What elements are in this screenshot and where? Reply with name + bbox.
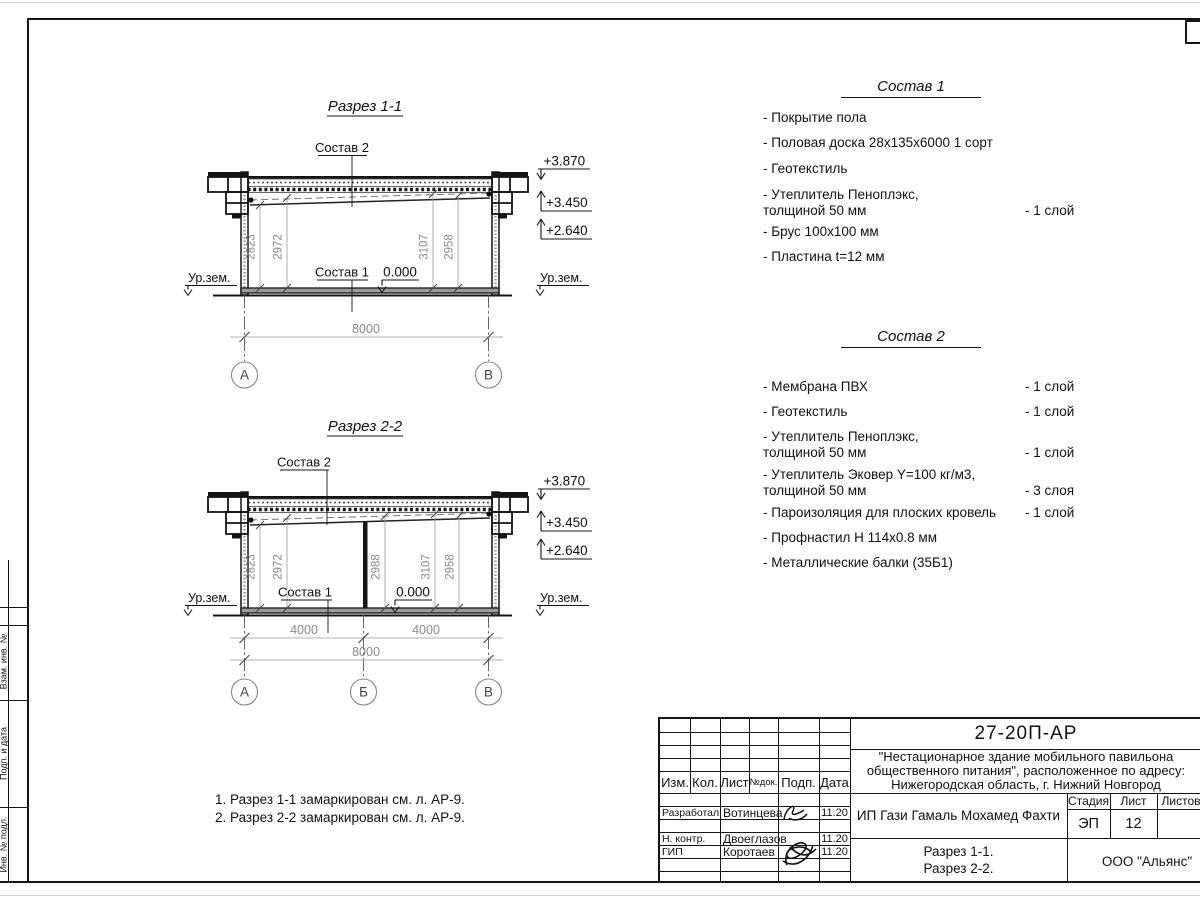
axis-m: Б — [359, 685, 368, 700]
floor-and-ground — [213, 608, 512, 616]
note-2: 2. Разрез 2-2 замаркирован см. л. АР-9. — [215, 809, 465, 827]
list-item: - Профнастил Н 114х0.8 мм — [763, 530, 1185, 546]
list-item: - Мембрана ПВХ - 1 слой — [763, 379, 1185, 395]
composition-1-title: Состав 1 — [841, 78, 981, 98]
roof-composition-leader: Состав 2 — [277, 455, 331, 526]
frame-corner-box — [1185, 20, 1200, 44]
tb-line — [660, 745, 850, 746]
organization-name: ООО "Альянс" — [1067, 838, 1200, 885]
tb-line — [660, 793, 850, 794]
signatures — [778, 797, 820, 872]
span-8000: 8000 — [352, 322, 380, 336]
dim-2823: 2823 — [246, 554, 258, 580]
roof-composition-label: Состав 2 — [277, 455, 331, 470]
span-4000-right: 4000 — [412, 623, 440, 637]
side-label-podp: Подп. и дата — [0, 704, 11, 804]
col-sign: Подп. — [778, 771, 819, 793]
dim-3107: 3107 — [421, 554, 433, 580]
side-label-vzam: Взам. инв. № — [0, 628, 11, 696]
side-strip-divider — [0, 700, 28, 701]
elevation-marks: +3.870 +3.450 +2.640 — [537, 154, 592, 240]
sheet-label: Лист — [1110, 793, 1157, 809]
section-2-2-title-group: Разрез 2-2 — [327, 418, 403, 436]
note-1: 1. Разрез 1-1 замаркирован см. л. АР-9. — [215, 791, 465, 809]
floor-composition-label: Состав 1 — [315, 265, 369, 280]
span-4000-left: 4000 — [290, 623, 318, 637]
date-gip: 11.20 — [819, 845, 850, 858]
col-izm: Изм. — [660, 771, 690, 793]
elevation-2640: +2.640 — [546, 543, 588, 558]
name-ncontrol: Двоеглазов — [723, 832, 778, 845]
list-item: - Утеплитель Пеноплэкс,толщиной 50 мм - … — [763, 187, 1185, 218]
elevation-3450: +3.450 — [546, 195, 588, 210]
dim-2958: 2958 — [445, 554, 457, 580]
list-item: - Металлические балки (35Б1) — [763, 555, 1185, 571]
floor-composition-label: Состав 1 — [278, 585, 332, 600]
vertical-dimension-texts: 2823 2972 2988 3107 2958 — [246, 554, 457, 580]
list-item: - Геотекстиль - 1 слой — [763, 404, 1185, 420]
sheet-title: Разрез 1-1. Разрез 2-2. — [850, 843, 1067, 877]
zero-level-text: 0.000 — [383, 265, 417, 280]
name-developer: Вотинцева — [723, 806, 778, 819]
section-1-1-title-group: Разрез 1-1 — [327, 98, 403, 116]
dim-2972: 2972 — [273, 554, 285, 580]
dim-2988: 2988 — [371, 554, 383, 580]
composition-2-list: Состав 2 - Мембрана ПВХ - 1 слой - Геоте… — [740, 320, 1185, 590]
ground-label-right: Ур.зем. — [540, 591, 582, 605]
role-ncontrol: Н. контр. — [662, 832, 720, 845]
role-gip: ГИП — [662, 845, 720, 858]
ground-label-left: Ур.зем. — [188, 591, 230, 605]
roof-assembly — [241, 176, 499, 205]
tb-line — [660, 758, 850, 759]
list-item: - Пароизоляция для плоских кровель - 1 с… — [763, 505, 1185, 521]
name-gip: Коротаев — [723, 845, 778, 858]
floor-and-ground — [213, 288, 512, 296]
ground-label-left: Ур.зем. — [188, 271, 230, 285]
ground-label-right: Ур.зем. — [540, 271, 582, 285]
axis-a: А — [240, 368, 249, 383]
dim-2972: 2972 — [273, 234, 285, 260]
section-1-1-drawing: Разрез 1-1 — [180, 95, 600, 395]
col-kol: Кол. — [690, 771, 720, 793]
stage-value: ЭП — [1067, 809, 1110, 838]
list-item: - Покрытие пола — [763, 110, 1185, 126]
side-strip-divider — [0, 807, 28, 808]
col-date: Дата — [819, 771, 850, 793]
side-label-inv: Инв. № подл. — [0, 811, 11, 879]
composition-2-title: Состав 2 — [841, 328, 981, 348]
side-strip-divider — [0, 625, 28, 626]
list-item: - Утеплитель Эковер Y=100 кг/м3,толщиной… — [763, 467, 1185, 498]
project-name: "Нестационарное здание мобильного павиль… — [852, 750, 1200, 792]
notes: 1. Разрез 1-1 замаркирован см. л. АР-9. … — [215, 791, 465, 826]
middle-column — [363, 522, 368, 608]
list-item: - Геотекстиль — [763, 161, 1185, 177]
date-ncontrol: 11.20 — [819, 832, 850, 845]
signature-developer — [784, 806, 807, 819]
frame-left-line — [27, 18, 29, 883]
list-item: - Пластина t=12 мм — [763, 249, 1185, 265]
tb-line — [720, 719, 721, 881]
axis-b: В — [484, 368, 493, 383]
date-developer: 11.20 — [819, 806, 850, 819]
section-2-2-drawing: Разрез 2-2 — [180, 415, 600, 715]
sheets-value — [1157, 809, 1200, 838]
sheet-edge-top — [0, 2, 1200, 3]
elevation-2640: +2.640 — [546, 223, 588, 238]
drawing-sheet: { "sheet": { "side_column_labels": ["Вза… — [0, 0, 1200, 900]
list-item: - Брус 100х100 мм — [763, 224, 1185, 240]
roof-assembly — [241, 496, 499, 525]
dim-3107: 3107 — [419, 234, 431, 260]
sheet-value: 12 — [1110, 809, 1157, 838]
title-block: Изм. Кол. Лист №док. Подп. Дата Разработ… — [658, 717, 1200, 883]
dim-2958: 2958 — [444, 234, 456, 260]
col-list: Лист — [720, 771, 749, 793]
role-developer: Разработал — [662, 806, 720, 819]
span-8000: 8000 — [352, 645, 380, 659]
axes-and-span: 8000 А В — [230, 295, 503, 388]
doc-number: 27-20П-АР — [850, 719, 1200, 749]
frame-top-line — [27, 18, 1200, 20]
elevation-3450: +3.450 — [546, 515, 588, 530]
section-2-2-title: Разрез 2-2 — [328, 418, 403, 435]
tb-line — [660, 871, 850, 872]
sheet-edge-bottom — [0, 895, 1200, 896]
elevation-3870: +3.870 — [544, 154, 586, 169]
axis-b: В — [484, 685, 493, 700]
walls — [241, 172, 499, 295]
tb-line — [660, 732, 850, 733]
col-doc: №док. — [749, 771, 778, 793]
side-strip-divider — [0, 607, 28, 608]
elevation-3870: +3.870 — [544, 474, 586, 489]
signature-approvers — [783, 843, 816, 865]
section-1-1-title: Разрез 1-1 — [328, 98, 402, 115]
composition-1-list: Состав 1 - Покрытие пола - Половая доска… — [740, 70, 1185, 360]
client-name: ИП Гази Гамаль Мохамед Фахти — [850, 793, 1067, 838]
list-item: - Половая доска 28х135х6000 1 сорт — [763, 135, 1185, 151]
roof-composition-label: Состав 2 — [315, 140, 369, 155]
zero-level-text: 0.000 — [396, 585, 430, 600]
list-item: - Утеплитель Пеноплэкс,толщиной 50 мм - … — [763, 429, 1185, 460]
dim-2823: 2823 — [246, 234, 258, 260]
axes-and-spans: 4000 4000 8000 А Б В — [230, 615, 503, 705]
sheets-label: Листов — [1157, 793, 1200, 809]
stage-label: Стадия — [1067, 793, 1110, 809]
vertical-dimension-texts: 2823 2972 3107 2958 — [246, 234, 456, 260]
axis-a: А — [240, 685, 249, 700]
elevation-marks: +3.870 +3.450 +2.640 — [537, 474, 592, 560]
